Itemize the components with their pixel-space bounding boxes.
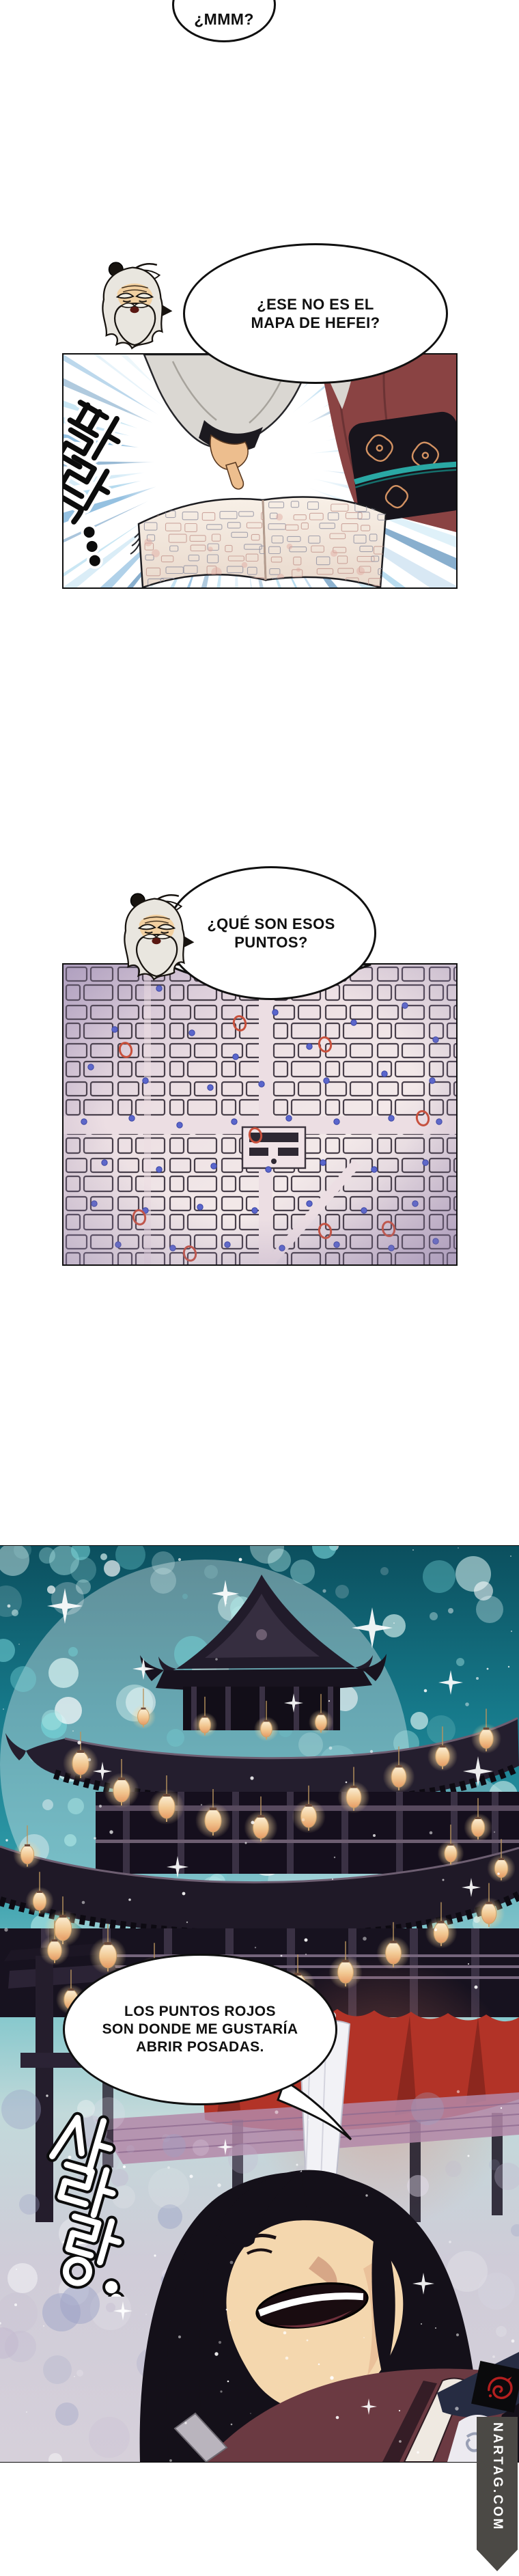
bubble-line: PUNTOS? [234, 934, 308, 951]
watermark-text: NARTAG.COM [490, 2422, 505, 2571]
chibi-elder-icon [115, 891, 198, 981]
bubble-line: ¿QUÉ SON ESOS [207, 915, 335, 932]
bubble-line: ABRIR POSADAS. [136, 2039, 264, 2055]
bubble-line: MAPA DE HEFEI? [251, 314, 380, 331]
chibi-elder-icon [93, 260, 176, 350]
bubble-text: ¿ESE NO ES EL MAPA DE HEFEI? [251, 295, 380, 333]
bubble-text: LOS PUNTOS ROJOS SON DONDE ME GUSTARÍA A… [102, 2003, 298, 2056]
city-map-art [64, 965, 456, 1264]
bubble-line: SON DONDE ME GUSTARÍA [102, 2021, 298, 2037]
webtoon-page: ¿MMM? [0, 0, 519, 2576]
panel-book-reading [62, 353, 458, 589]
bubble-line: LOS PUNTOS ROJOS [124, 2004, 276, 2019]
bubble-text: ¿QUÉ SON ESOS PUNTOS? [207, 915, 335, 952]
dragon-icon [475, 2365, 519, 2409]
panel-book-art [64, 355, 456, 587]
speech-bubble-mmm: ¿MMM? [172, 0, 276, 42]
watermark-ribbon: NARTAG.COM [477, 2417, 518, 2571]
dragon-logo-badge [471, 2361, 519, 2413]
speech-bubble-map-question: ¿ESE NO ES EL MAPA DE HEFEI? [183, 243, 448, 384]
map-book [130, 497, 391, 588]
panel-city-map [62, 963, 458, 1266]
speech-bubble-answer: LOS PUNTOS ROJOS SON DONDE ME GUSTARÍA A… [63, 1954, 337, 2105]
bubble-text: ¿MMM? [194, 10, 254, 40]
bubble-line: ¿ESE NO ES EL [257, 296, 374, 313]
